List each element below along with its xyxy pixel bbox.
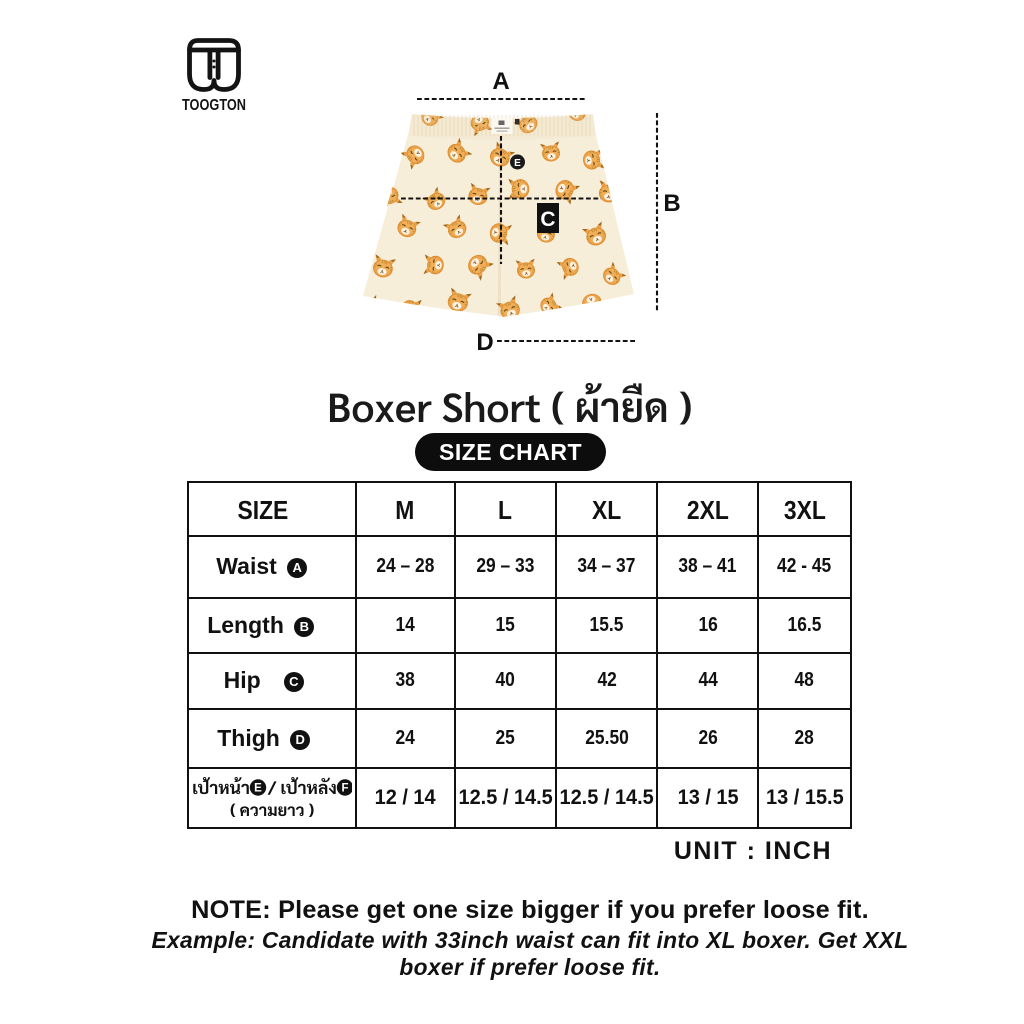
svg-text:E: E	[254, 782, 262, 794]
svg-text:A: A	[492, 68, 509, 95]
svg-text:F: F	[341, 782, 348, 794]
svg-text:C: C	[540, 208, 555, 231]
svg-text:TOOGTON: TOOGTON	[182, 97, 246, 114]
svg-text:B: B	[663, 190, 680, 217]
svg-text:E: E	[514, 158, 521, 169]
svg-text:D: D	[476, 329, 493, 356]
